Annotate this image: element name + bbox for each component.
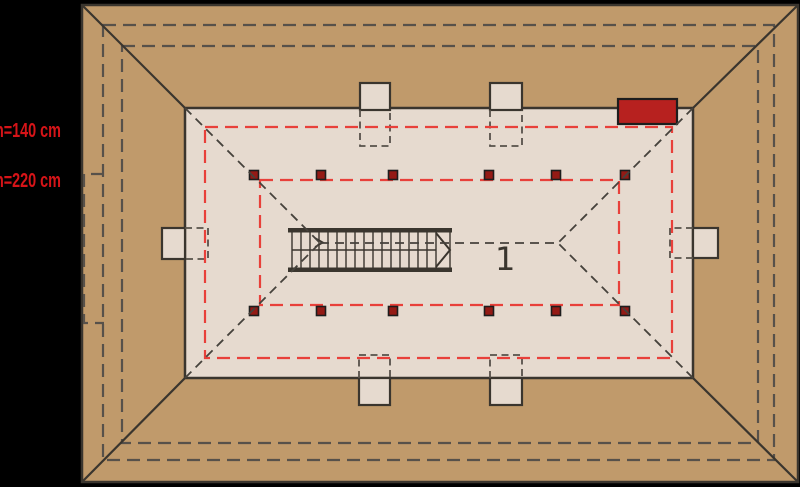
chimney-right-solid	[693, 228, 718, 258]
stair-rail-top	[288, 228, 452, 233]
post	[389, 307, 398, 316]
post	[552, 171, 561, 180]
floor-plan-canvas: h=140 cm h=220 cm 1	[0, 0, 800, 487]
post	[317, 171, 326, 180]
height-label-220: h=220 cm	[0, 169, 61, 192]
chimney-bottom-2-solid	[490, 378, 522, 405]
post	[389, 171, 398, 180]
chimney-top-2-solid	[490, 83, 522, 110]
post	[485, 171, 494, 180]
chimney-bottom-1-solid	[359, 378, 390, 405]
attic-plan-drawing: h=140 cm h=220 cm 1	[0, 0, 800, 487]
post	[552, 307, 561, 316]
post	[485, 307, 494, 316]
chimney-top-1-solid	[360, 83, 390, 110]
attic-floor-outline	[185, 108, 693, 378]
masonry-chimney-red	[618, 99, 677, 124]
room-number-label: 1	[495, 240, 515, 278]
height-label-140: h=140 cm	[0, 119, 61, 142]
stair-rail-bottom	[288, 268, 452, 273]
post	[317, 307, 326, 316]
chimney-left-solid	[162, 228, 185, 259]
